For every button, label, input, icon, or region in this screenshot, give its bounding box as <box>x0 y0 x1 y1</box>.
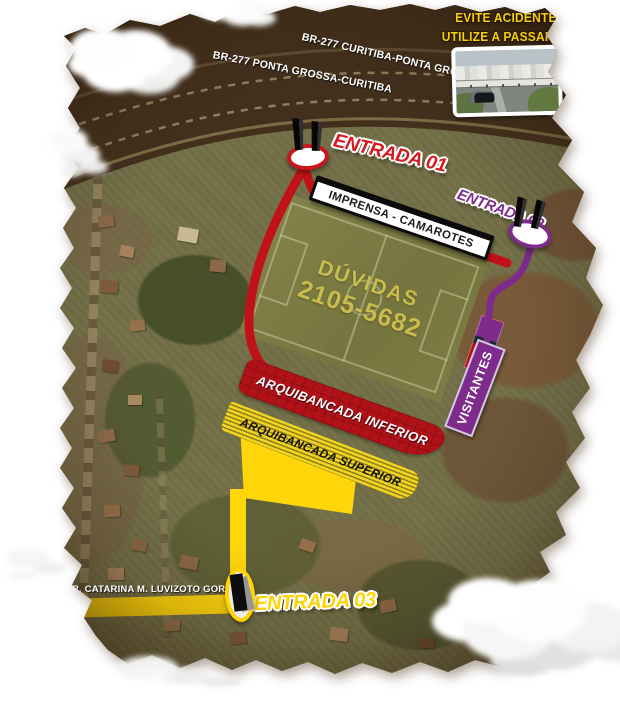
street-name-label: R. CATARINA M. LUVIZOTO GORDA <box>72 584 239 595</box>
safety-notice: EVITE ACIDENTES UTILIZE A PASSARELA <box>439 9 581 47</box>
notice-line-1: EVITE ACIDENTES <box>439 9 581 28</box>
passarela-photo-frame <box>451 45 563 118</box>
cloud-bottom-center <box>118 656 178 680</box>
cloud-bottom-left <box>6 548 50 568</box>
photo-car <box>471 91 495 103</box>
entrance-3-label: ENTRADA 03 <box>254 589 377 616</box>
passarela-photo <box>455 49 559 114</box>
stadium-access-map: DÚVIDAS 2105-5682 ARQUIBANCADA INFERIOR … <box>0 0 620 709</box>
notice-line-2: UTILIZE A PASSARELA <box>439 28 581 47</box>
cloud-bottom-right <box>448 578 528 624</box>
route-1-path <box>249 166 305 382</box>
cloud-top-left <box>70 28 134 68</box>
route-3-street <box>62 594 248 618</box>
cloud-left <box>48 128 88 154</box>
